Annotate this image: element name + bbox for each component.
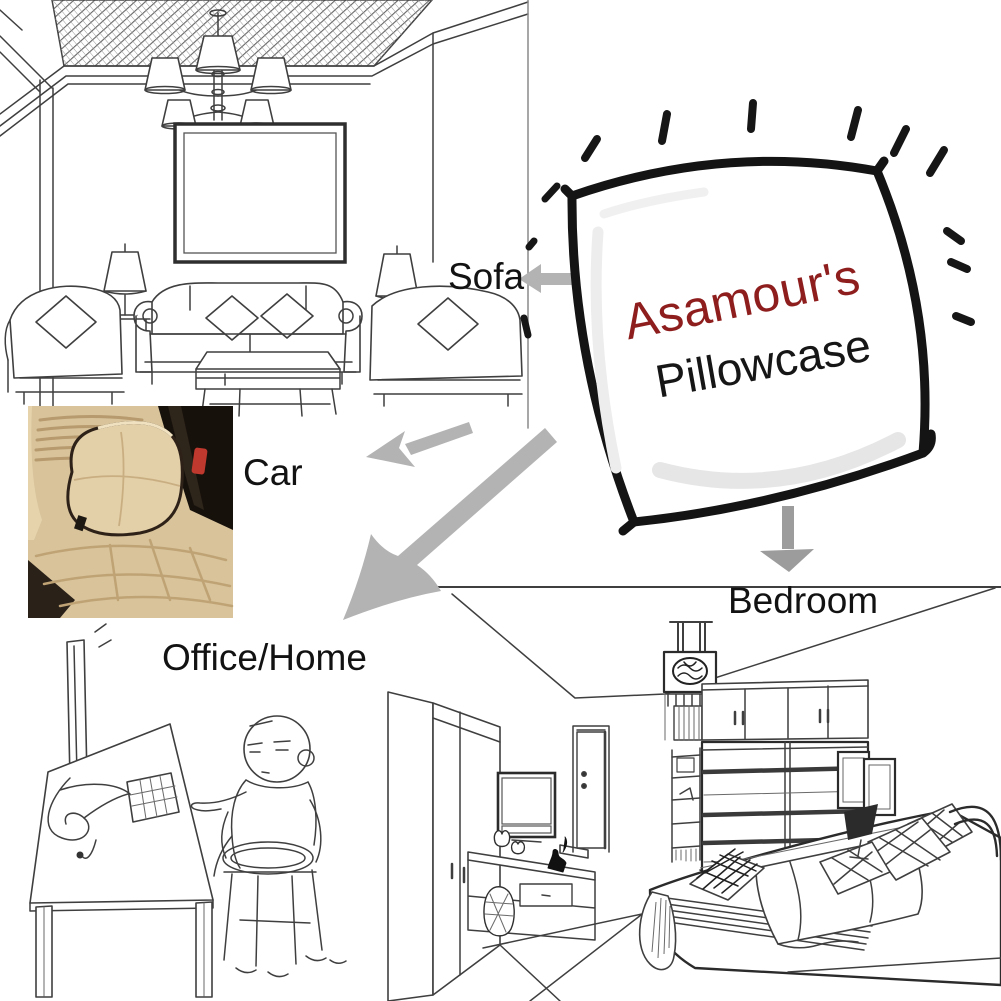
label-office-home: Office/Home xyxy=(162,639,367,678)
label-sofa: Sofa xyxy=(448,258,524,297)
pillow-and-arrows xyxy=(0,0,1001,1001)
label-car: Car xyxy=(243,454,303,493)
poster: Sofa Car Office/Home Bedroom Asamour's P… xyxy=(0,0,1001,1001)
arrow-to-bedroom xyxy=(760,506,814,572)
arrow-to-sofa xyxy=(519,264,573,293)
label-bedroom: Bedroom xyxy=(728,582,878,621)
arrow-to-car xyxy=(366,422,473,467)
